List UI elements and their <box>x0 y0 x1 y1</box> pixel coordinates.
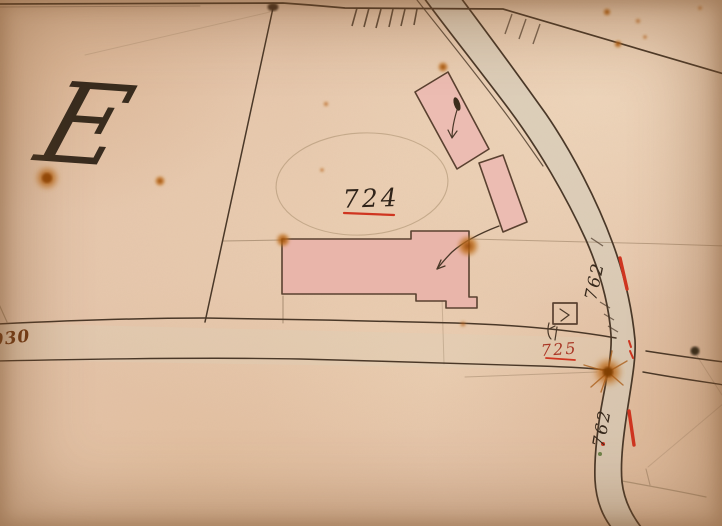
parcel-label-724: 724 <box>342 183 400 214</box>
ink-node <box>268 3 279 11</box>
green-speck <box>598 452 602 456</box>
cadastral-map-sheet: E 930 724 725 762 762 <box>0 0 722 526</box>
ink-blot <box>691 347 700 356</box>
map-drawing: E 930 724 725 762 762 <box>0 0 722 526</box>
parcel-label-725: 725 <box>540 338 578 360</box>
